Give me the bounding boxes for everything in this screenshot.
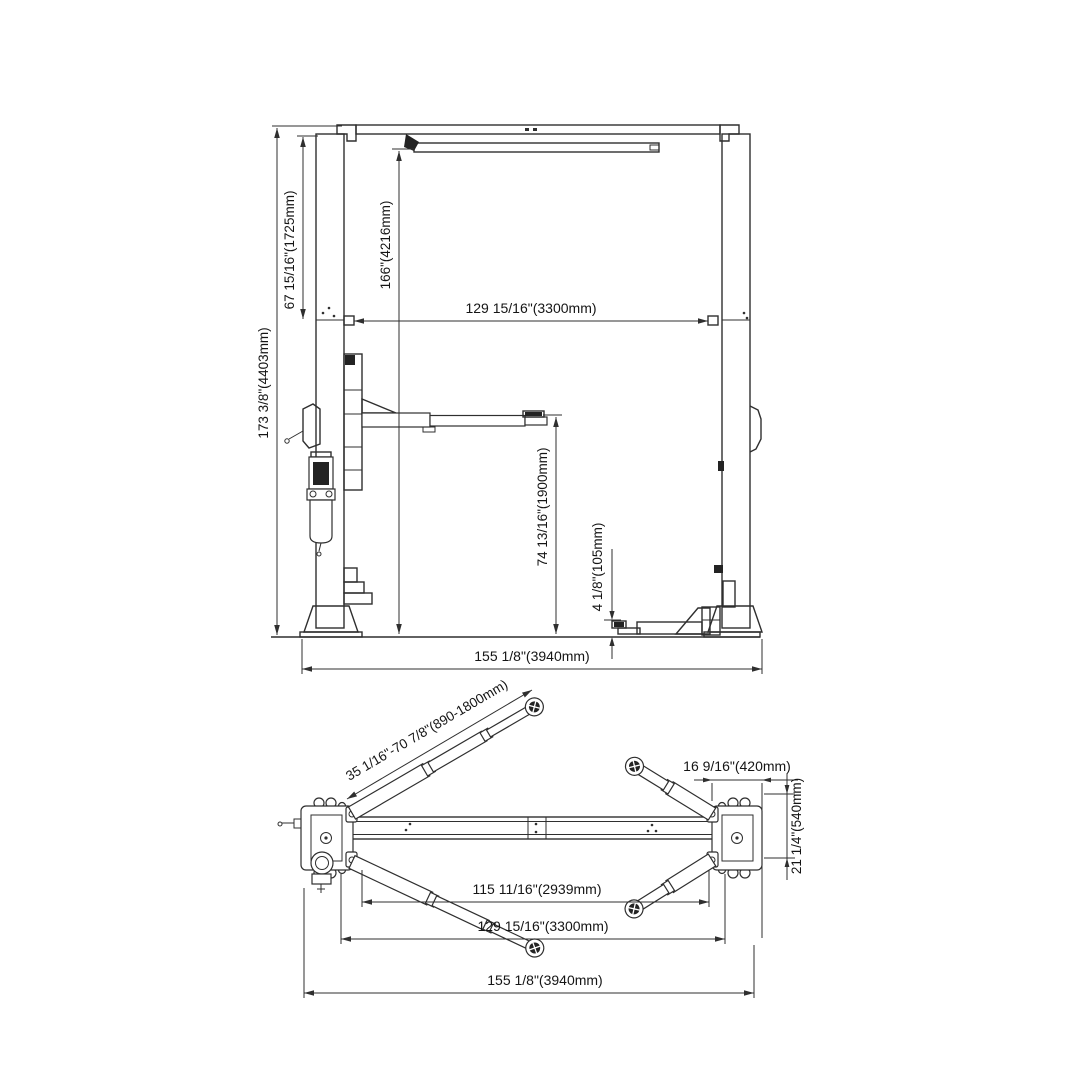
left-carriage-raised-arm: [344, 354, 547, 490]
rear-right-arm-retracted: [622, 852, 717, 921]
left-post-base: [300, 568, 372, 637]
release-lever: [303, 404, 320, 448]
rear-left-arm-extended: [348, 854, 547, 960]
dim-label-upper-section-height: 67 15/16"(1725mm): [282, 191, 297, 310]
right-post: [708, 134, 761, 628]
two-post-lift-technical-drawing: 173 3/8"(4403mm) 67 15/16"(1725mm) 166"(…: [0, 0, 1082, 1080]
motor-top-view: [311, 852, 333, 874]
overhead-safety-bar: [404, 134, 659, 152]
dim-label-between-posts-plan: 129 15/16"(3300mm): [477, 918, 608, 934]
dim-label-baseplate-depth: 21 1/4"(540mm): [789, 778, 804, 874]
power-unit: [285, 404, 335, 556]
right-carriage-lowered-arm: [612, 565, 735, 635]
lift-pad-raised: [525, 412, 542, 416]
dim-label-overall-width-plan: 155 1/8"(3940mm): [487, 972, 602, 988]
top-plan-view: 35 1/16"-70 7/8"(890-1800mm) 16 9/16"(42…: [278, 677, 804, 998]
technical-drawing-page: 173 3/8"(4403mm) 67 15/16"(1725mm) 166"(…: [0, 0, 1082, 1080]
dim-label-max-lifting-height: 74 13/16"(1900mm): [535, 448, 550, 567]
dim-label-clearance-under-beam: 166"(4216mm): [378, 201, 393, 290]
left-post: [316, 134, 354, 628]
right-post-base: [704, 606, 762, 637]
floor-beam: [352, 817, 713, 839]
dim-label-overall-height: 173 3/8"(4403mm): [256, 327, 271, 438]
front-view-dimensions: 173 3/8"(4403mm) 67 15/16"(1725mm) 166"(…: [256, 126, 762, 674]
dim-label-overall-width-front: 155 1/8"(3940mm): [474, 648, 589, 664]
dim-label-min-pad-height: 4 1/8"(105mm): [590, 523, 605, 612]
dim-label-between-posts-front: 129 15/16"(3300mm): [465, 300, 596, 316]
left-post-plan: [278, 798, 357, 893]
safety-lock-cover: [750, 406, 761, 452]
dim-label-inside-clearance: 115 11/16"(2939mm): [473, 881, 602, 897]
overhead-beam: [337, 125, 739, 141]
hydraulic-tank: [310, 500, 332, 543]
front-elevation-view: 173 3/8"(4403mm) 67 15/16"(1725mm) 166"(…: [256, 125, 762, 674]
dim-label-baseplate-width: 16 9/16"(420mm): [683, 758, 791, 774]
lift-pad-lowered: [614, 622, 624, 627]
